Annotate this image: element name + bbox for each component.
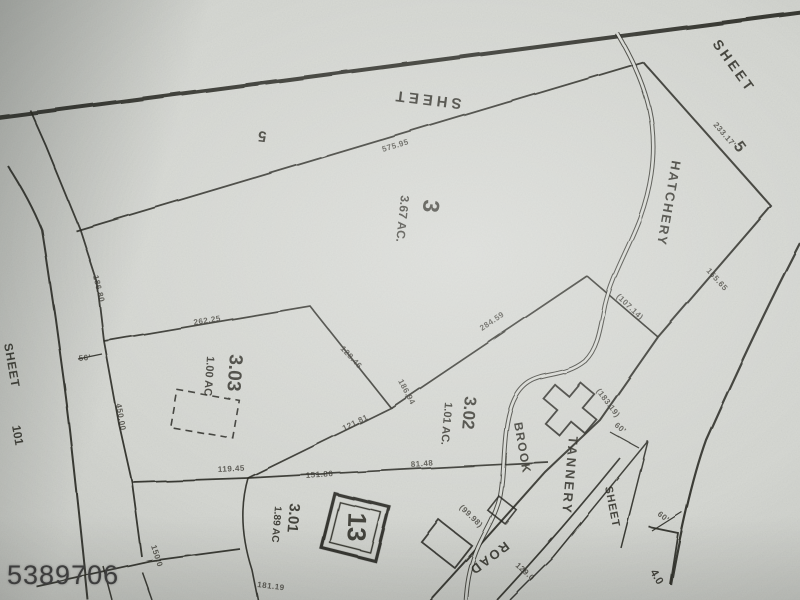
block-number-label: 13 xyxy=(342,512,373,542)
tax-map: 13 SHEET 5 SHEET 5 SHEET 101 SHEET 4.0 H… xyxy=(0,0,800,600)
dimension-label: 56' xyxy=(78,353,91,363)
dimension-label: 81.48 xyxy=(411,458,434,469)
watermark-photo-id: 5389706 xyxy=(7,560,119,591)
parcel-301-id: 3.01 xyxy=(283,503,302,534)
parcel-3-id: 3 xyxy=(418,198,445,213)
parcel-302-id: 3.02 xyxy=(458,396,480,431)
tax-map-photo: 13 SHEET 5 SHEET 5 SHEET 101 SHEET 4.0 H… xyxy=(0,0,800,600)
dimension-label: 151.86 xyxy=(306,469,334,480)
dimension-label: 119.45 xyxy=(218,464,246,474)
parcel-303-id: 3.03 xyxy=(222,354,246,392)
